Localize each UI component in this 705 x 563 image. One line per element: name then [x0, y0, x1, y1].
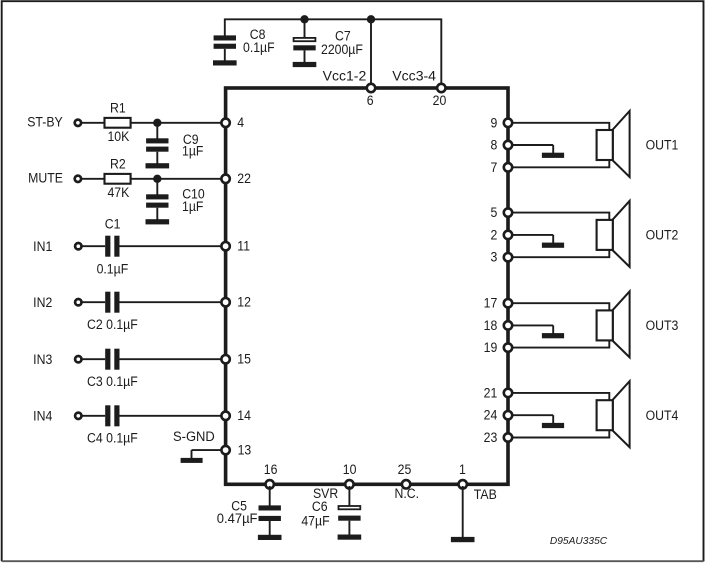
- svg-text:0.1µF: 0.1µF: [97, 261, 129, 277]
- svg-text:8: 8: [490, 137, 497, 153]
- svg-text:16: 16: [264, 461, 278, 477]
- svg-text:C4 0.1µF: C4 0.1µF: [87, 430, 138, 446]
- svg-text:IN3: IN3: [33, 351, 52, 367]
- svg-text:23: 23: [484, 429, 498, 445]
- svg-text:15: 15: [237, 351, 251, 367]
- svg-text:R2: R2: [110, 155, 126, 171]
- svg-text:OUT4: OUT4: [646, 407, 679, 423]
- svg-text:12: 12: [237, 294, 251, 310]
- svg-text:C2 0.1µF: C2 0.1µF: [87, 316, 138, 332]
- svg-text:25: 25: [398, 461, 412, 477]
- svg-text:24: 24: [484, 407, 498, 423]
- svg-text:Vcc3-4: Vcc3-4: [392, 68, 436, 84]
- svg-text:19: 19: [484, 339, 498, 355]
- svg-text:OUT3: OUT3: [646, 317, 679, 333]
- svg-text:OUT2: OUT2: [646, 227, 679, 243]
- svg-text:6: 6: [367, 92, 374, 108]
- svg-text:ST-BY: ST-BY: [27, 113, 63, 129]
- svg-text:IN1: IN1: [33, 238, 52, 254]
- svg-text:10: 10: [343, 461, 357, 477]
- svg-text:2200µF: 2200µF: [321, 41, 363, 57]
- svg-text:17: 17: [484, 295, 498, 311]
- svg-text:C3 0.1µF: C3 0.1µF: [87, 373, 138, 389]
- svg-text:22: 22: [237, 170, 251, 186]
- svg-text:1µF: 1µF: [182, 198, 203, 214]
- svg-text:47µF: 47µF: [301, 513, 329, 529]
- svg-text:14: 14: [237, 407, 251, 423]
- svg-text:IN4: IN4: [33, 408, 52, 424]
- svg-text:9: 9: [490, 114, 497, 130]
- svg-text:5: 5: [490, 204, 497, 220]
- svg-text:C1: C1: [105, 216, 121, 232]
- svg-text:3: 3: [490, 249, 497, 265]
- svg-text:21: 21: [484, 385, 498, 401]
- svg-text:11: 11: [237, 238, 250, 254]
- svg-text:D95AU335C: D95AU335C: [550, 536, 608, 547]
- svg-text:TAB: TAB: [474, 486, 497, 502]
- svg-text:13: 13: [238, 442, 252, 458]
- svg-text:0.47µF: 0.47µF: [217, 510, 258, 526]
- svg-text:20: 20: [433, 92, 447, 108]
- svg-text:4: 4: [237, 114, 244, 130]
- svg-text:MUTE: MUTE: [28, 170, 63, 186]
- svg-text:S-GND: S-GND: [173, 428, 215, 444]
- svg-text:IN2: IN2: [33, 294, 52, 310]
- svg-text:1µF: 1µF: [182, 143, 203, 159]
- svg-text:47K: 47K: [107, 184, 129, 200]
- svg-text:R1: R1: [110, 99, 126, 115]
- svg-text:Vcc1-2: Vcc1-2: [323, 68, 367, 84]
- svg-text:OUT1: OUT1: [646, 137, 679, 153]
- svg-text:N.C.: N.C.: [395, 485, 420, 501]
- svg-text:0.1µF: 0.1µF: [243, 39, 275, 55]
- svg-text:1: 1: [459, 461, 466, 477]
- svg-text:10K: 10K: [107, 128, 129, 144]
- svg-text:18: 18: [484, 317, 498, 333]
- svg-text:2: 2: [490, 227, 497, 243]
- svg-text:7: 7: [490, 159, 497, 175]
